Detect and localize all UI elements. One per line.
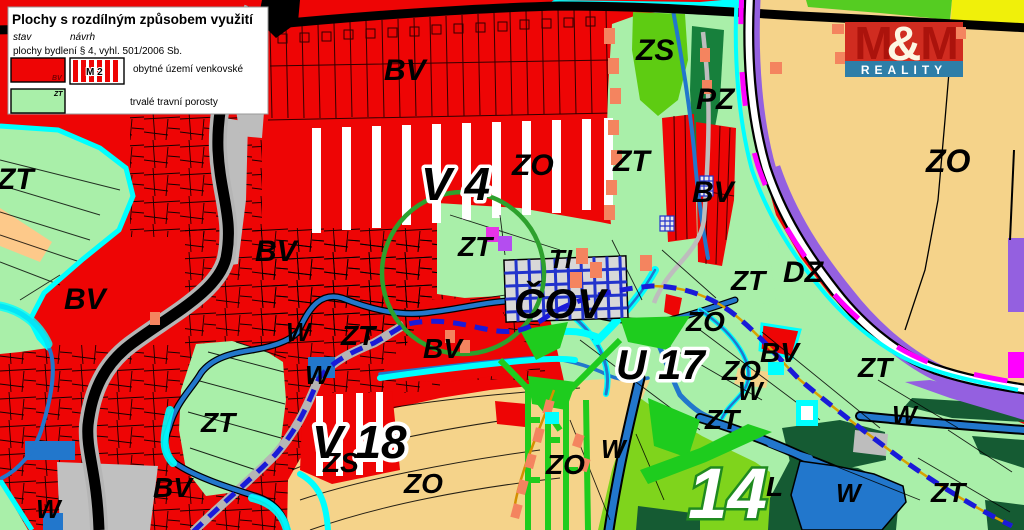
svg-text:ZO: ZO xyxy=(685,306,725,337)
svg-text:stav: stav xyxy=(13,32,32,43)
svg-text:návrh: návrh xyxy=(70,32,95,43)
svg-text:ZO: ZO xyxy=(545,449,585,480)
svg-text:V 4: V 4 xyxy=(421,158,490,210)
svg-text:ZT: ZT xyxy=(704,404,742,435)
svg-text:BV: BV xyxy=(64,283,109,316)
svg-text:ZS: ZS xyxy=(322,447,359,478)
svg-text:ZT: ZT xyxy=(0,163,36,196)
svg-text:ZT: ZT xyxy=(200,407,238,438)
svg-text:W: W xyxy=(738,376,765,406)
svg-text:U 17: U 17 xyxy=(616,341,706,388)
svg-text:ZT: ZT xyxy=(612,145,652,178)
svg-text:BV: BV xyxy=(692,176,737,209)
svg-text:ZT: ZT xyxy=(857,352,895,383)
svg-text:Plochy s rozdílným způsobem vy: Plochy s rozdílným způsobem využití xyxy=(12,12,254,27)
svg-text:ZO: ZO xyxy=(511,149,554,182)
svg-text:M 2: M 2 xyxy=(86,67,103,78)
svg-text:TI: TI xyxy=(549,244,573,274)
svg-text:BV: BV xyxy=(423,333,464,364)
svg-text:DZ: DZ xyxy=(783,256,825,289)
svg-text:PZ: PZ xyxy=(696,83,736,116)
svg-text:ZT: ZT xyxy=(53,91,63,98)
svg-text:ZO: ZO xyxy=(403,468,443,499)
svg-text:ZT: ZT xyxy=(930,477,968,508)
svg-text:BV: BV xyxy=(384,54,429,87)
svg-text:obytné území venkovské: obytné území venkovské xyxy=(133,64,243,75)
svg-text:14: 14 xyxy=(688,455,767,530)
svg-text:W: W xyxy=(36,494,63,524)
svg-text:ČOV: ČOV xyxy=(514,279,608,327)
svg-text:plochy bydlení § 4, vyhl. 501/: plochy bydlení § 4, vyhl. 501/2006 Sb. xyxy=(13,46,182,57)
svg-text:ZT: ZT xyxy=(730,265,768,296)
svg-text:BV: BV xyxy=(153,472,194,503)
svg-text:BV: BV xyxy=(760,337,801,368)
svg-text:trvalé travní porosty: trvalé travní porosty xyxy=(130,97,218,108)
svg-text:W: W xyxy=(836,478,863,508)
svg-text:REALITY: REALITY xyxy=(861,63,947,77)
svg-text:ZO: ZO xyxy=(925,143,971,179)
svg-text:ZT: ZT xyxy=(457,231,495,262)
svg-text:ZT: ZT xyxy=(340,320,378,351)
svg-text:W: W xyxy=(601,434,628,464)
svg-text:BV: BV xyxy=(255,235,300,268)
svg-text:BV: BV xyxy=(52,75,63,82)
svg-text:W: W xyxy=(305,360,332,390)
svg-text:ZS: ZS xyxy=(635,34,674,67)
svg-text:L: L xyxy=(766,471,783,502)
svg-text:W: W xyxy=(892,400,919,430)
svg-text:W: W xyxy=(286,317,313,347)
